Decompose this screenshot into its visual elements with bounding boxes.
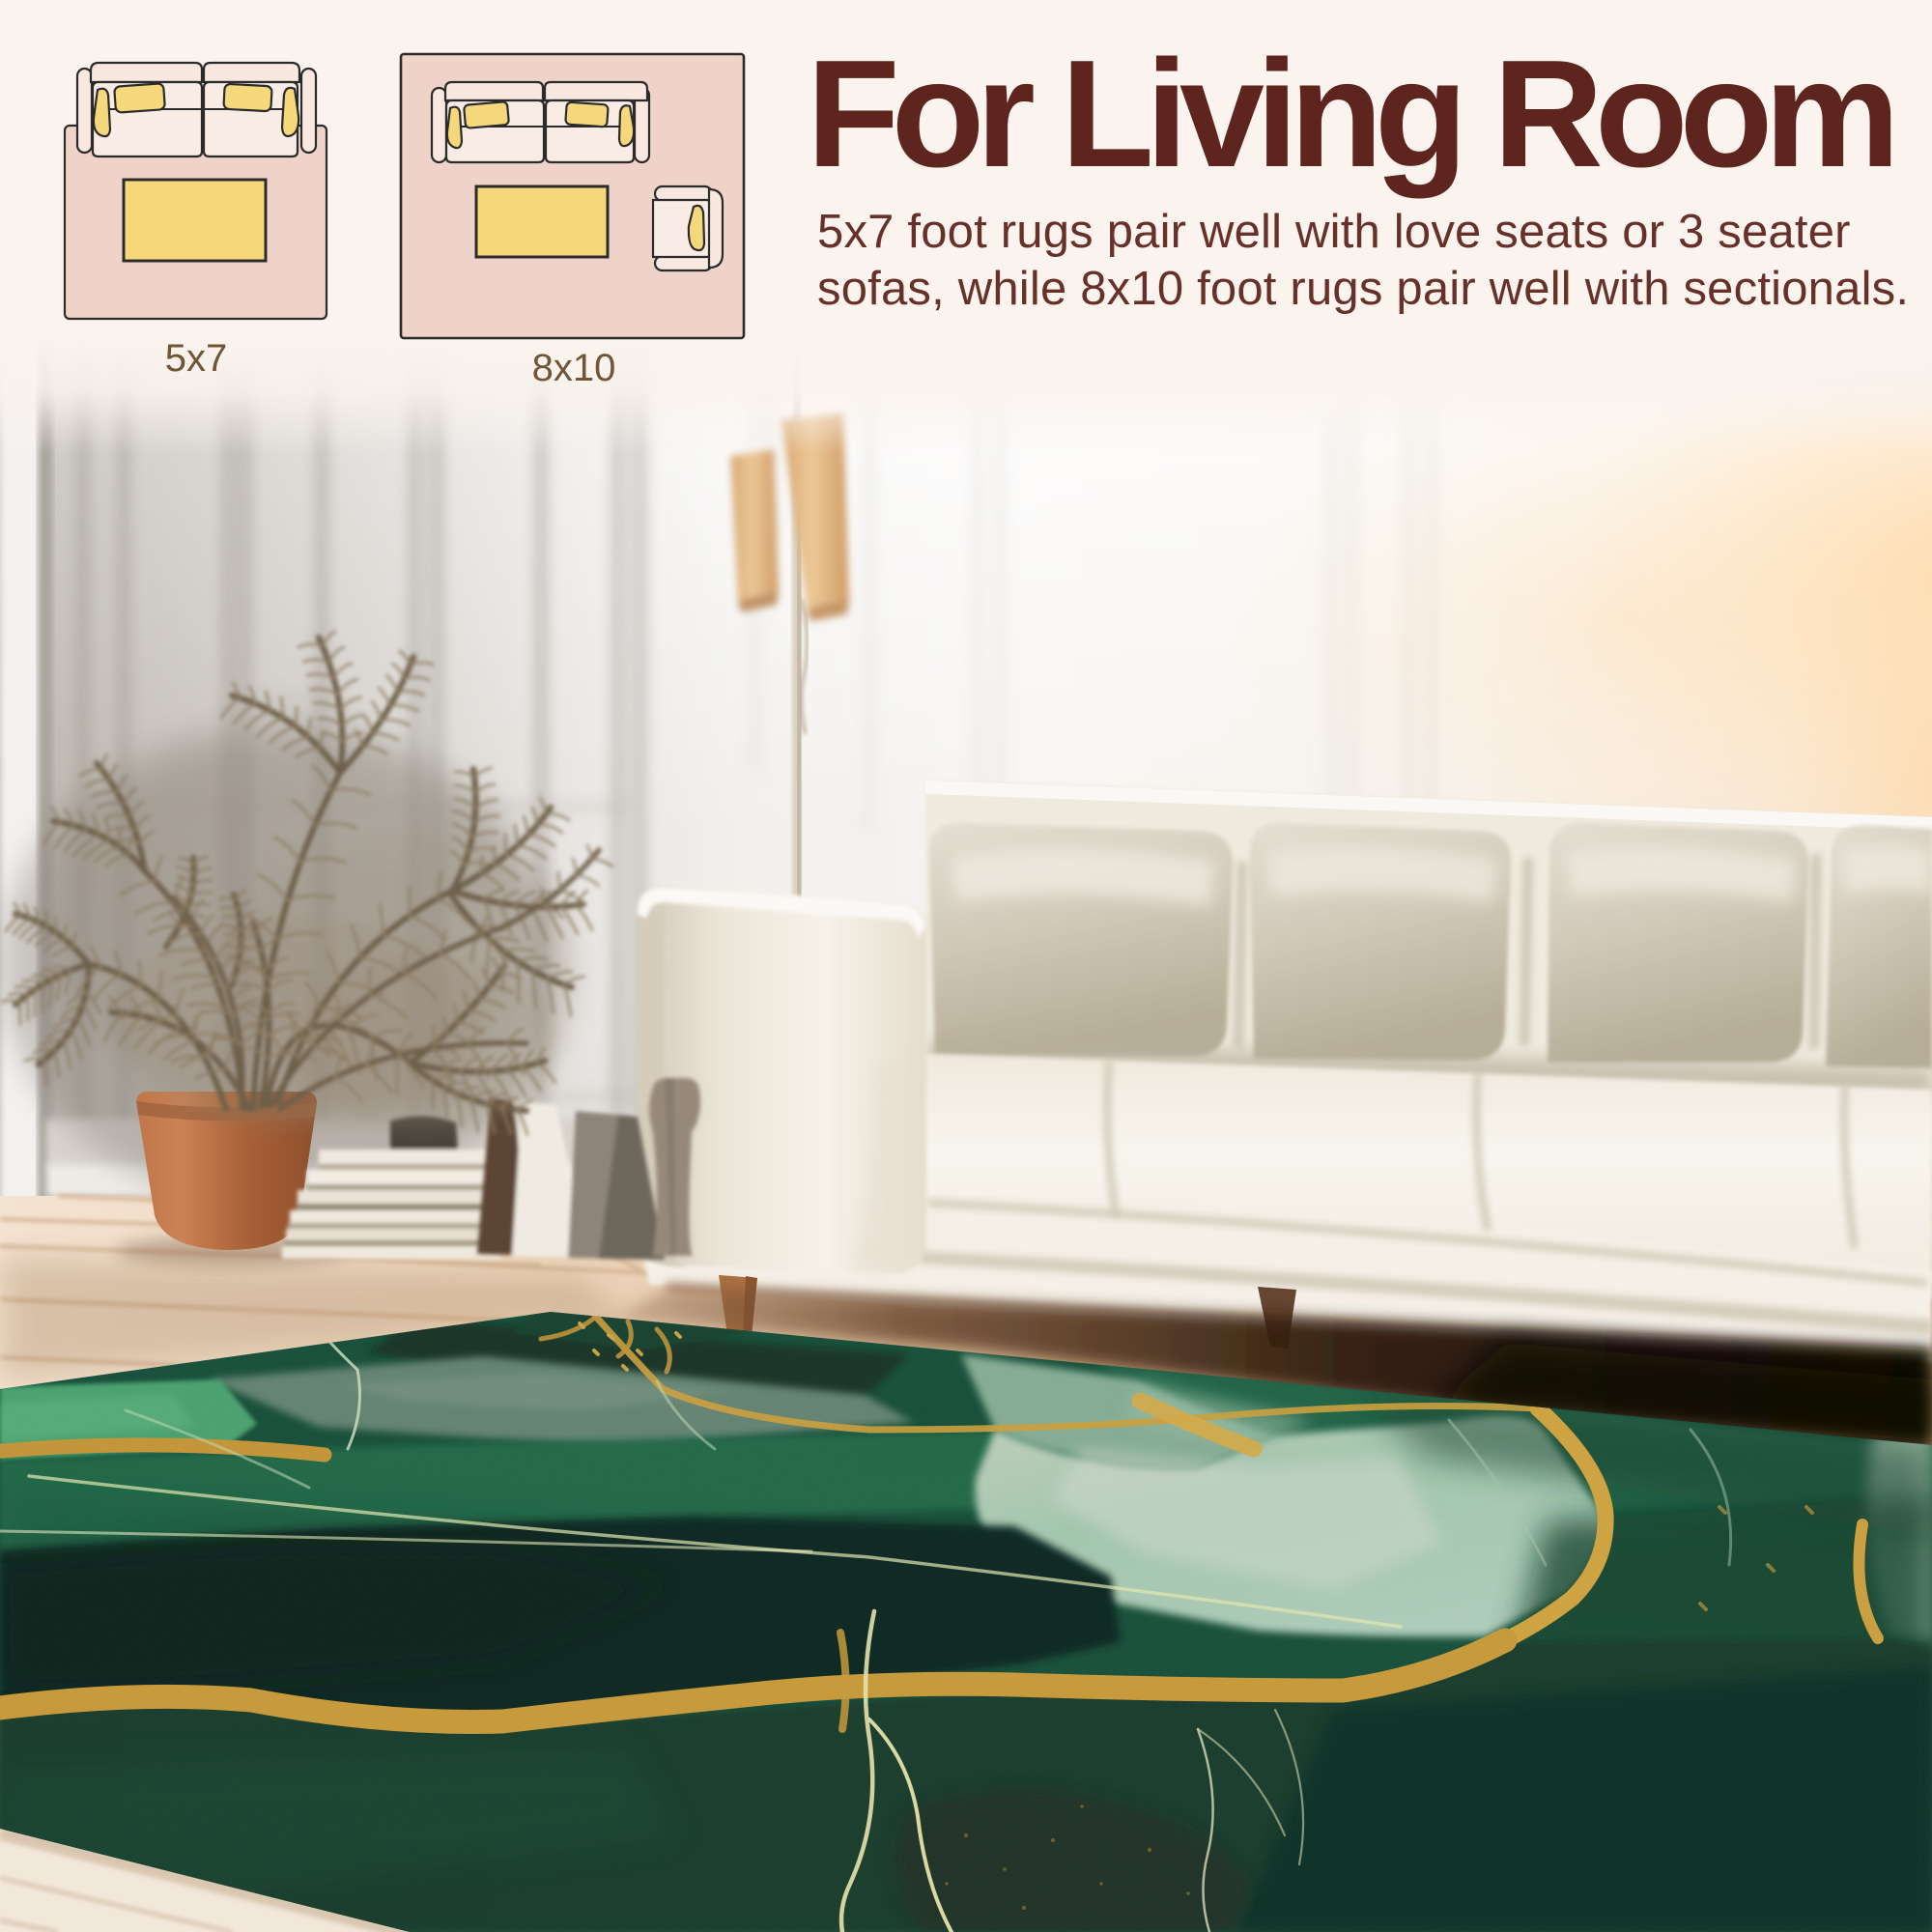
svg-text:8x10: 8x10: [532, 347, 616, 389]
svg-text:5x7: 5x7: [165, 337, 228, 380]
